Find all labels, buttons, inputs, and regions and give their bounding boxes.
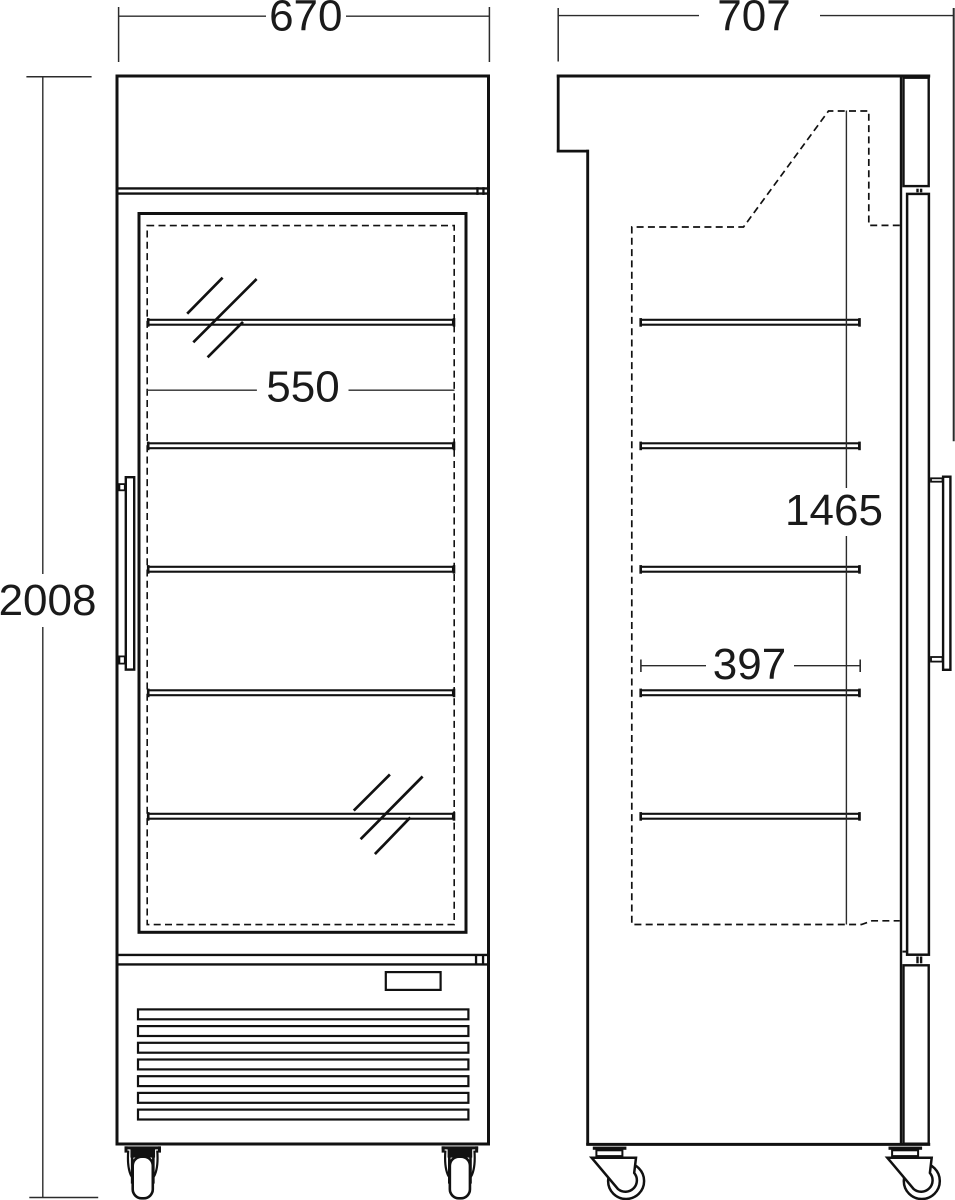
svg-text:550: 550	[266, 363, 339, 412]
svg-text:670: 670	[269, 0, 342, 41]
svg-text:1465: 1465	[785, 486, 883, 535]
svg-text:397: 397	[713, 640, 786, 689]
svg-text:2008: 2008	[0, 576, 96, 625]
svg-text:707: 707	[717, 0, 790, 41]
